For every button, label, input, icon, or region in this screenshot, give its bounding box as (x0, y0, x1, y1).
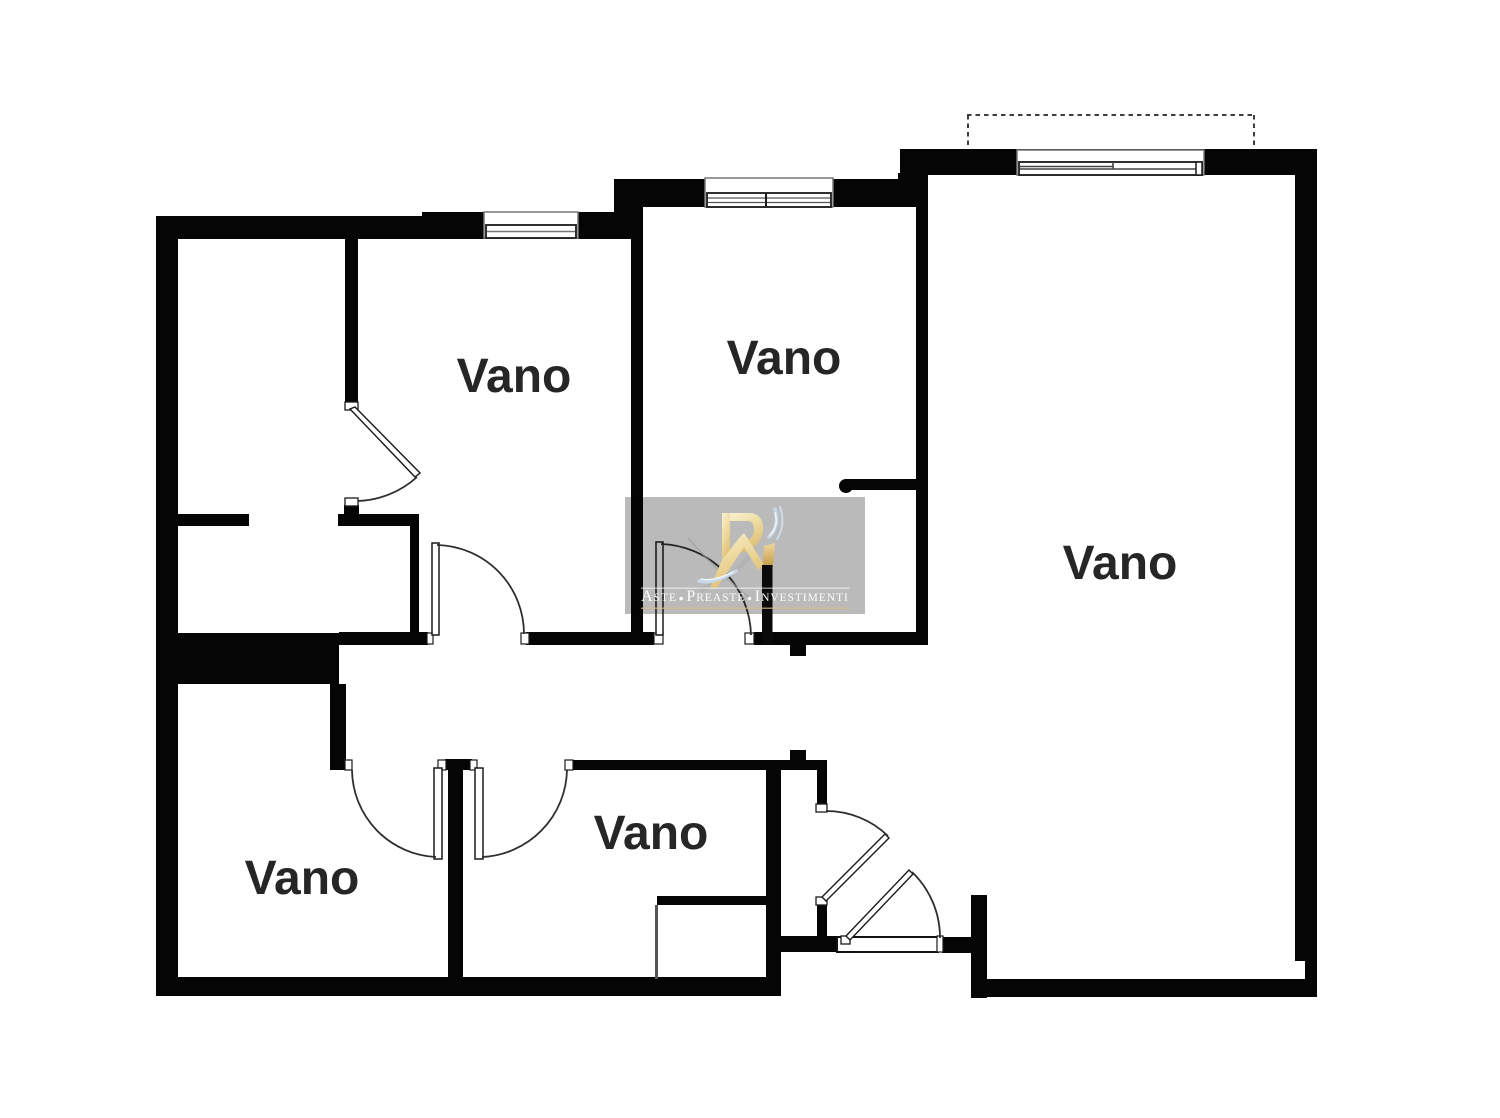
svg-text:Vano: Vano (457, 350, 572, 403)
svg-text:Vano: Vano (1063, 537, 1178, 590)
svg-text:Vano: Vano (727, 332, 842, 385)
svg-text:Vano: Vano (594, 807, 709, 860)
svg-text:Vano: Vano (245, 852, 360, 905)
